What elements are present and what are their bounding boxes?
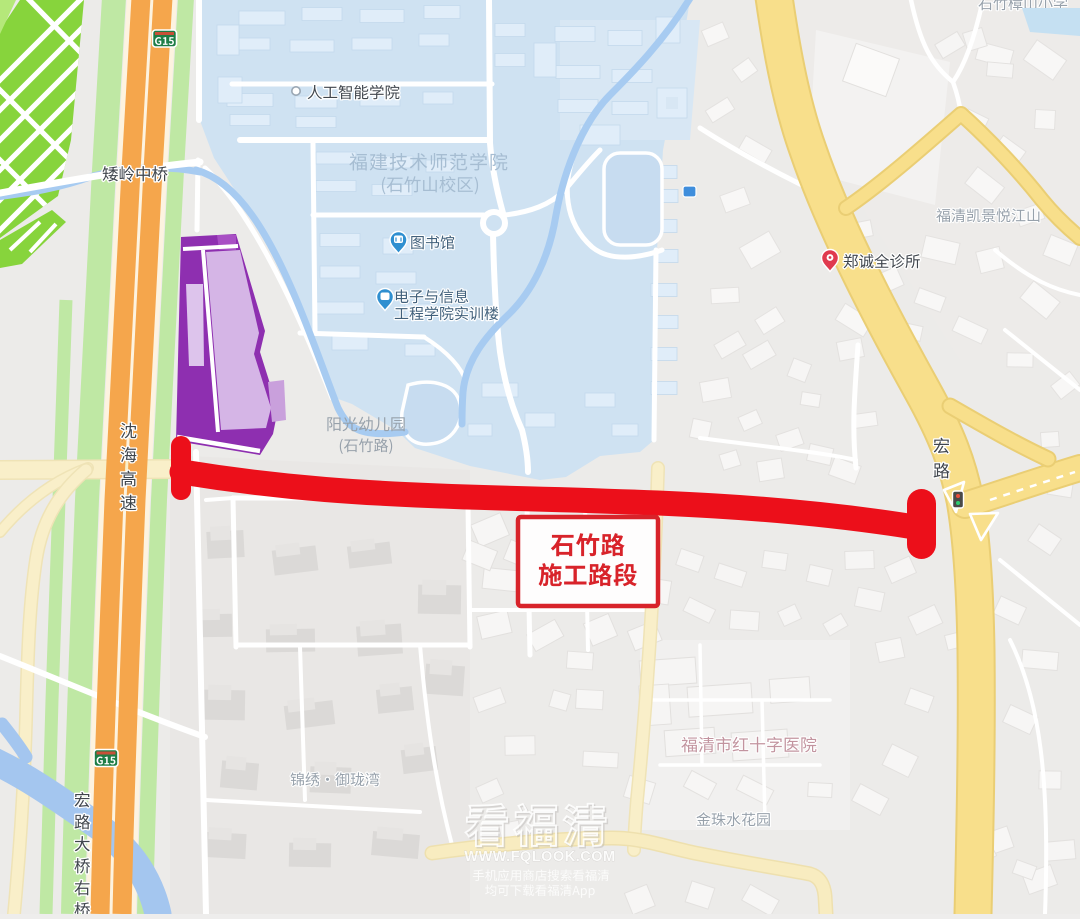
- svg-text:WWW.FQLOOK.COM: WWW.FQLOOK.COM: [464, 849, 615, 865]
